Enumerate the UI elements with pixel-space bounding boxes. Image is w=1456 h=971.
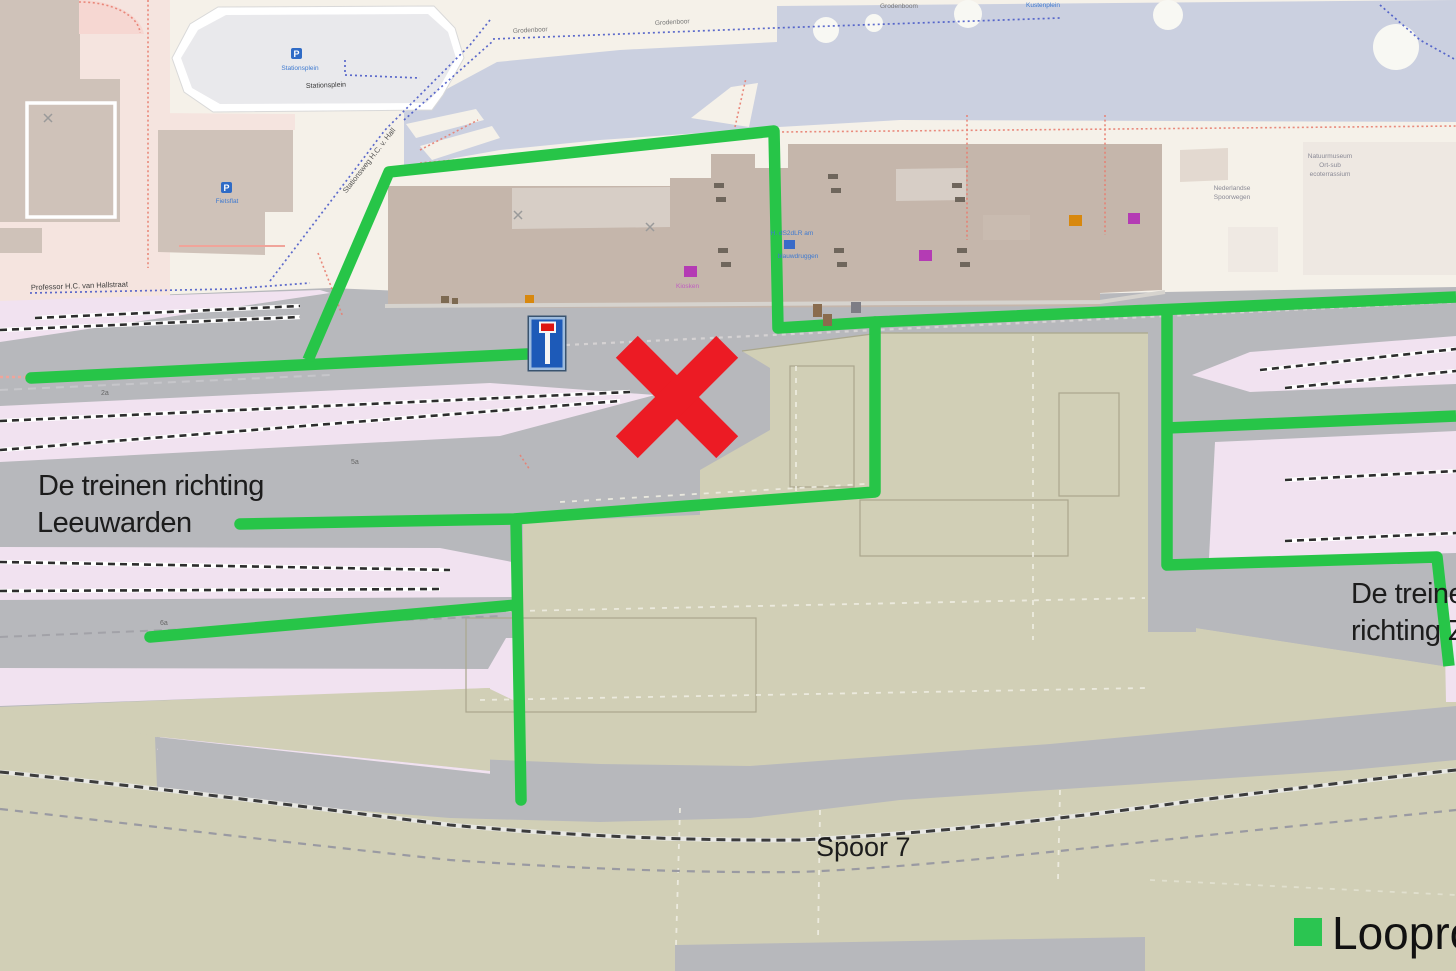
svg-text:6a: 6a bbox=[160, 620, 168, 627]
svg-text:Stationsplein: Stationsplein bbox=[281, 65, 319, 72]
svg-text:Ort-sub: Ort-sub bbox=[1319, 162, 1341, 169]
svg-text:2a: 2a bbox=[101, 390, 109, 397]
svg-text:Spoor 7: Spoor 7 bbox=[816, 832, 911, 862]
svg-text:richting Z: richting Z bbox=[1351, 615, 1456, 647]
svg-text:De treinen: De treinen bbox=[1351, 578, 1456, 610]
svg-text:ecoterrassium: ecoterrassium bbox=[1310, 171, 1351, 178]
svg-text:5a: 5a bbox=[351, 459, 359, 466]
svg-text:Nederlandse: Nederlandse bbox=[1214, 185, 1251, 192]
svg-text:Grodenboom: Grodenboom bbox=[880, 3, 918, 10]
svg-text:Leeuwarden: Leeuwarden bbox=[37, 507, 192, 539]
svg-text:Spoorwegen: Spoorwegen bbox=[1214, 194, 1251, 201]
svg-text:Kiosken: Kiosken bbox=[676, 283, 700, 290]
svg-text:H. dS2dLR am: H. dS2dLR am bbox=[771, 230, 814, 237]
svg-text:P: P bbox=[223, 183, 229, 193]
svg-text:P: P bbox=[293, 49, 299, 59]
svg-text:De treinen richting: De treinen richting bbox=[38, 470, 264, 502]
svg-text:Natuurmuseum: Natuurmuseum bbox=[1308, 153, 1352, 160]
svg-text:blauwdruggen: blauwdruggen bbox=[778, 253, 819, 260]
svg-text:Kustenplein: Kustenplein bbox=[1026, 2, 1060, 9]
svg-text:Stationsplein: Stationsplein bbox=[306, 82, 346, 90]
svg-text:Looproute: Looproute bbox=[1332, 907, 1456, 959]
svg-text:Fietsflat: Fietsflat bbox=[216, 198, 239, 205]
